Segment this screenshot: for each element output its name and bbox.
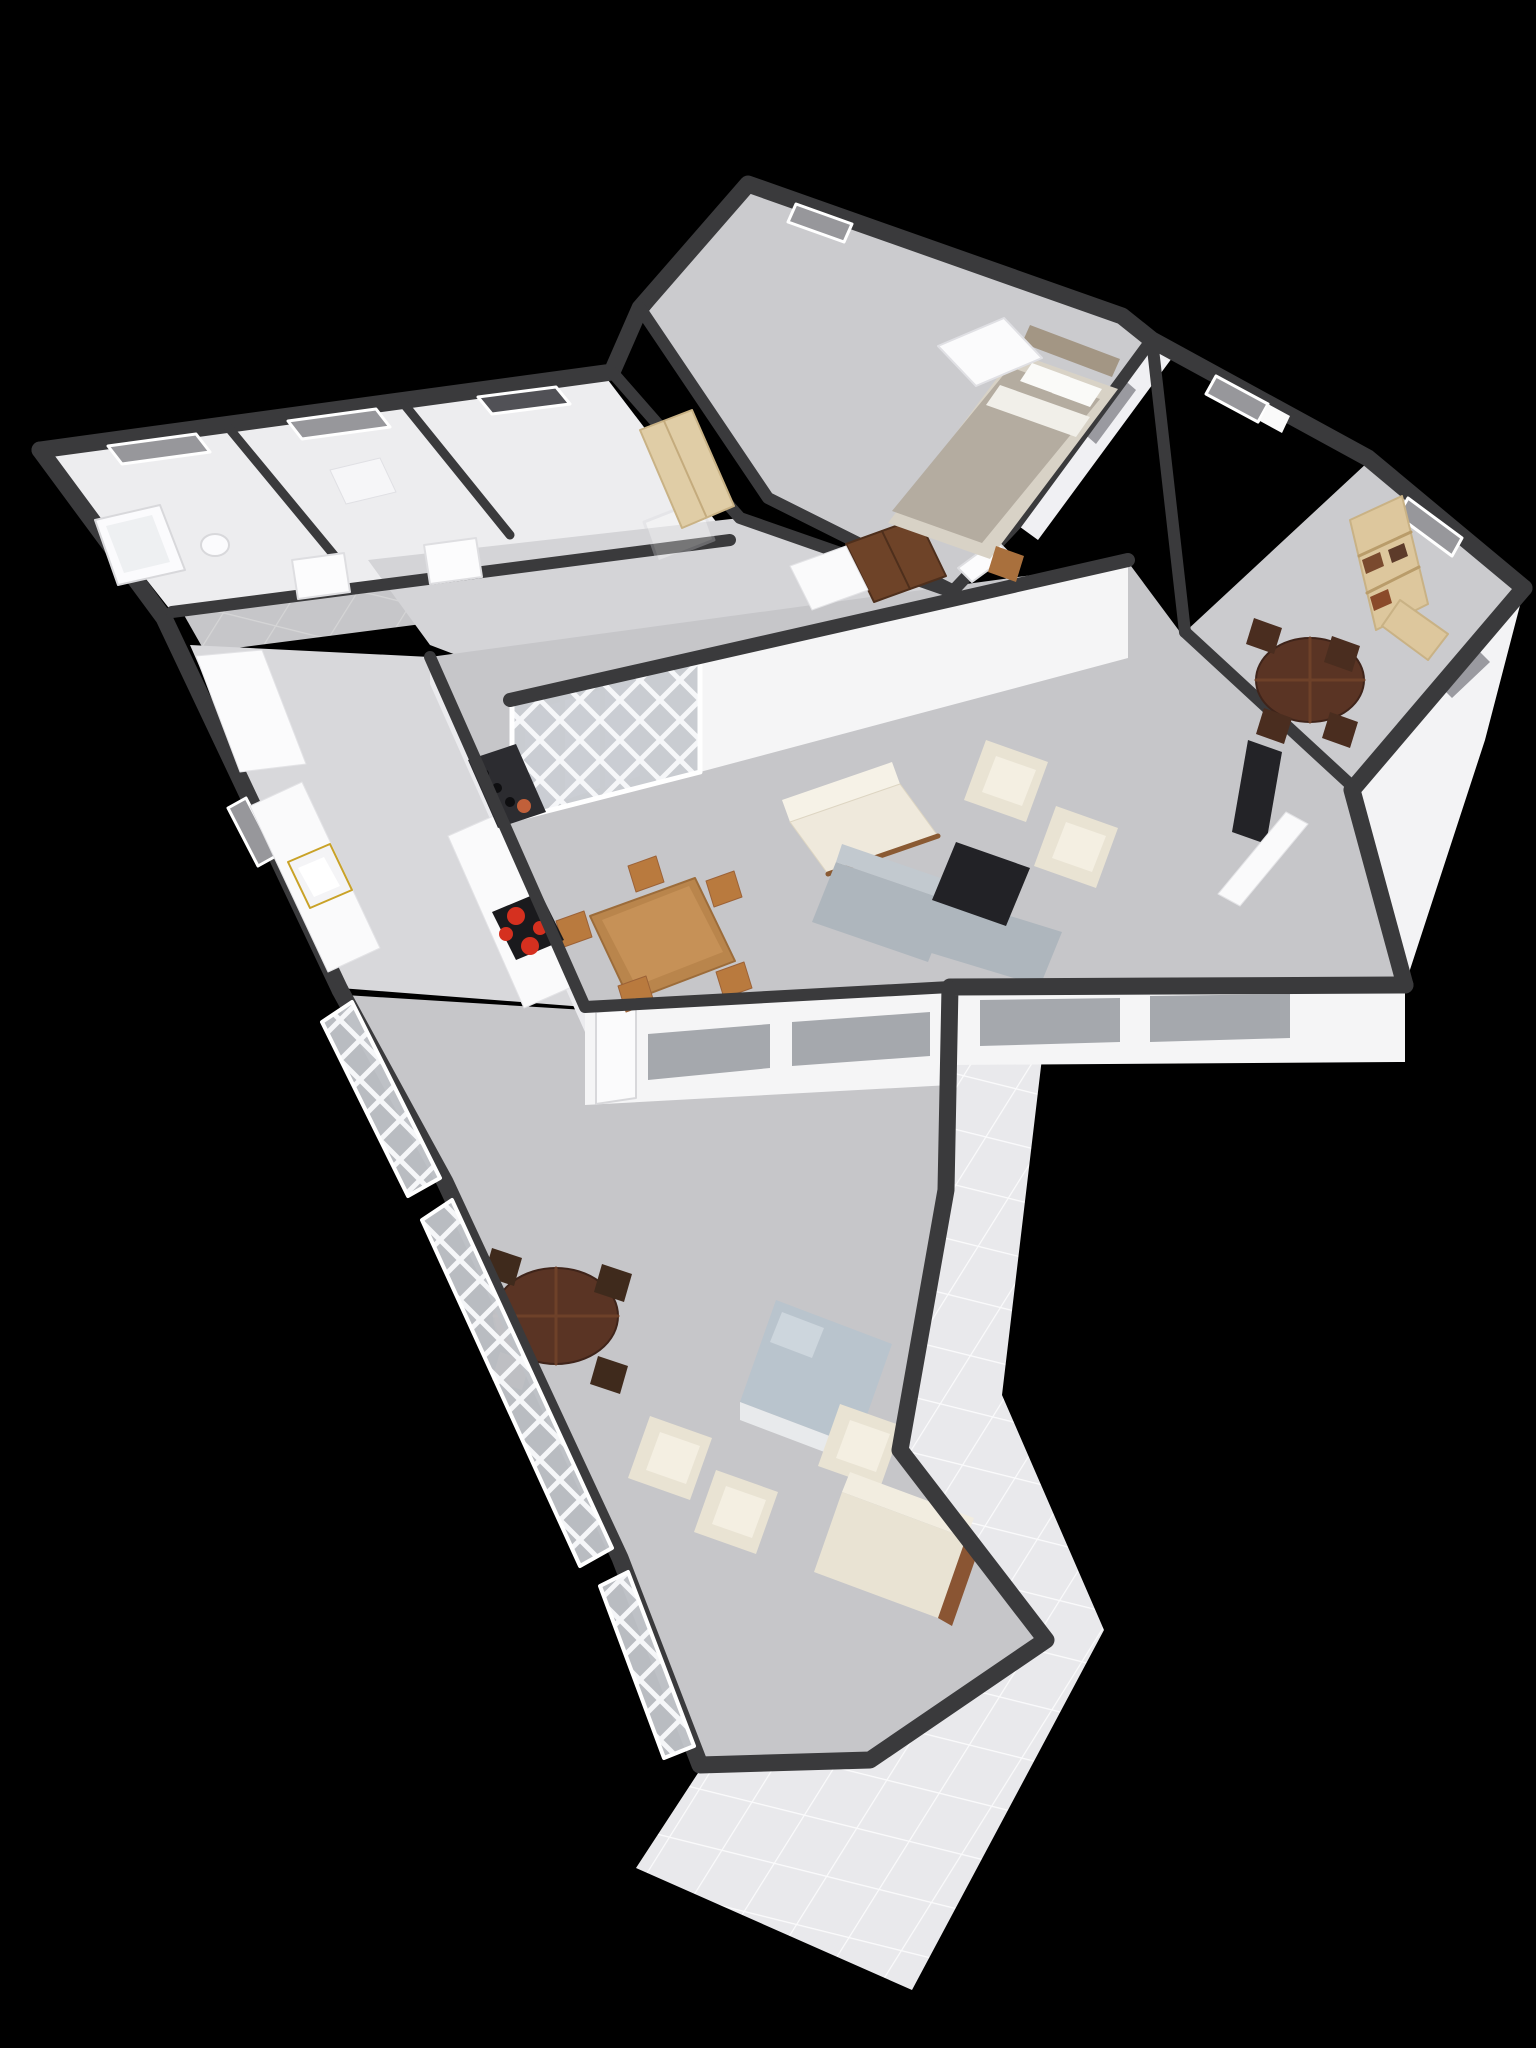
door-sunroom (596, 1008, 636, 1104)
screenshot-root (0, 0, 1536, 2048)
door-hall-1 (292, 553, 350, 599)
floorplan-svg (0, 0, 1536, 2048)
niche-item-orange (517, 799, 531, 813)
cooktop-burner (499, 927, 513, 941)
door-hall-2 (424, 538, 482, 584)
wall-cut-bedroom-study (1152, 340, 1185, 632)
window-living-south-2 (1150, 994, 1290, 1042)
cooktop-burner (521, 937, 539, 955)
window-living-south-1 (980, 998, 1120, 1046)
cooktop-burner (507, 907, 525, 925)
toilet (201, 534, 229, 556)
coat-hook (505, 797, 515, 807)
